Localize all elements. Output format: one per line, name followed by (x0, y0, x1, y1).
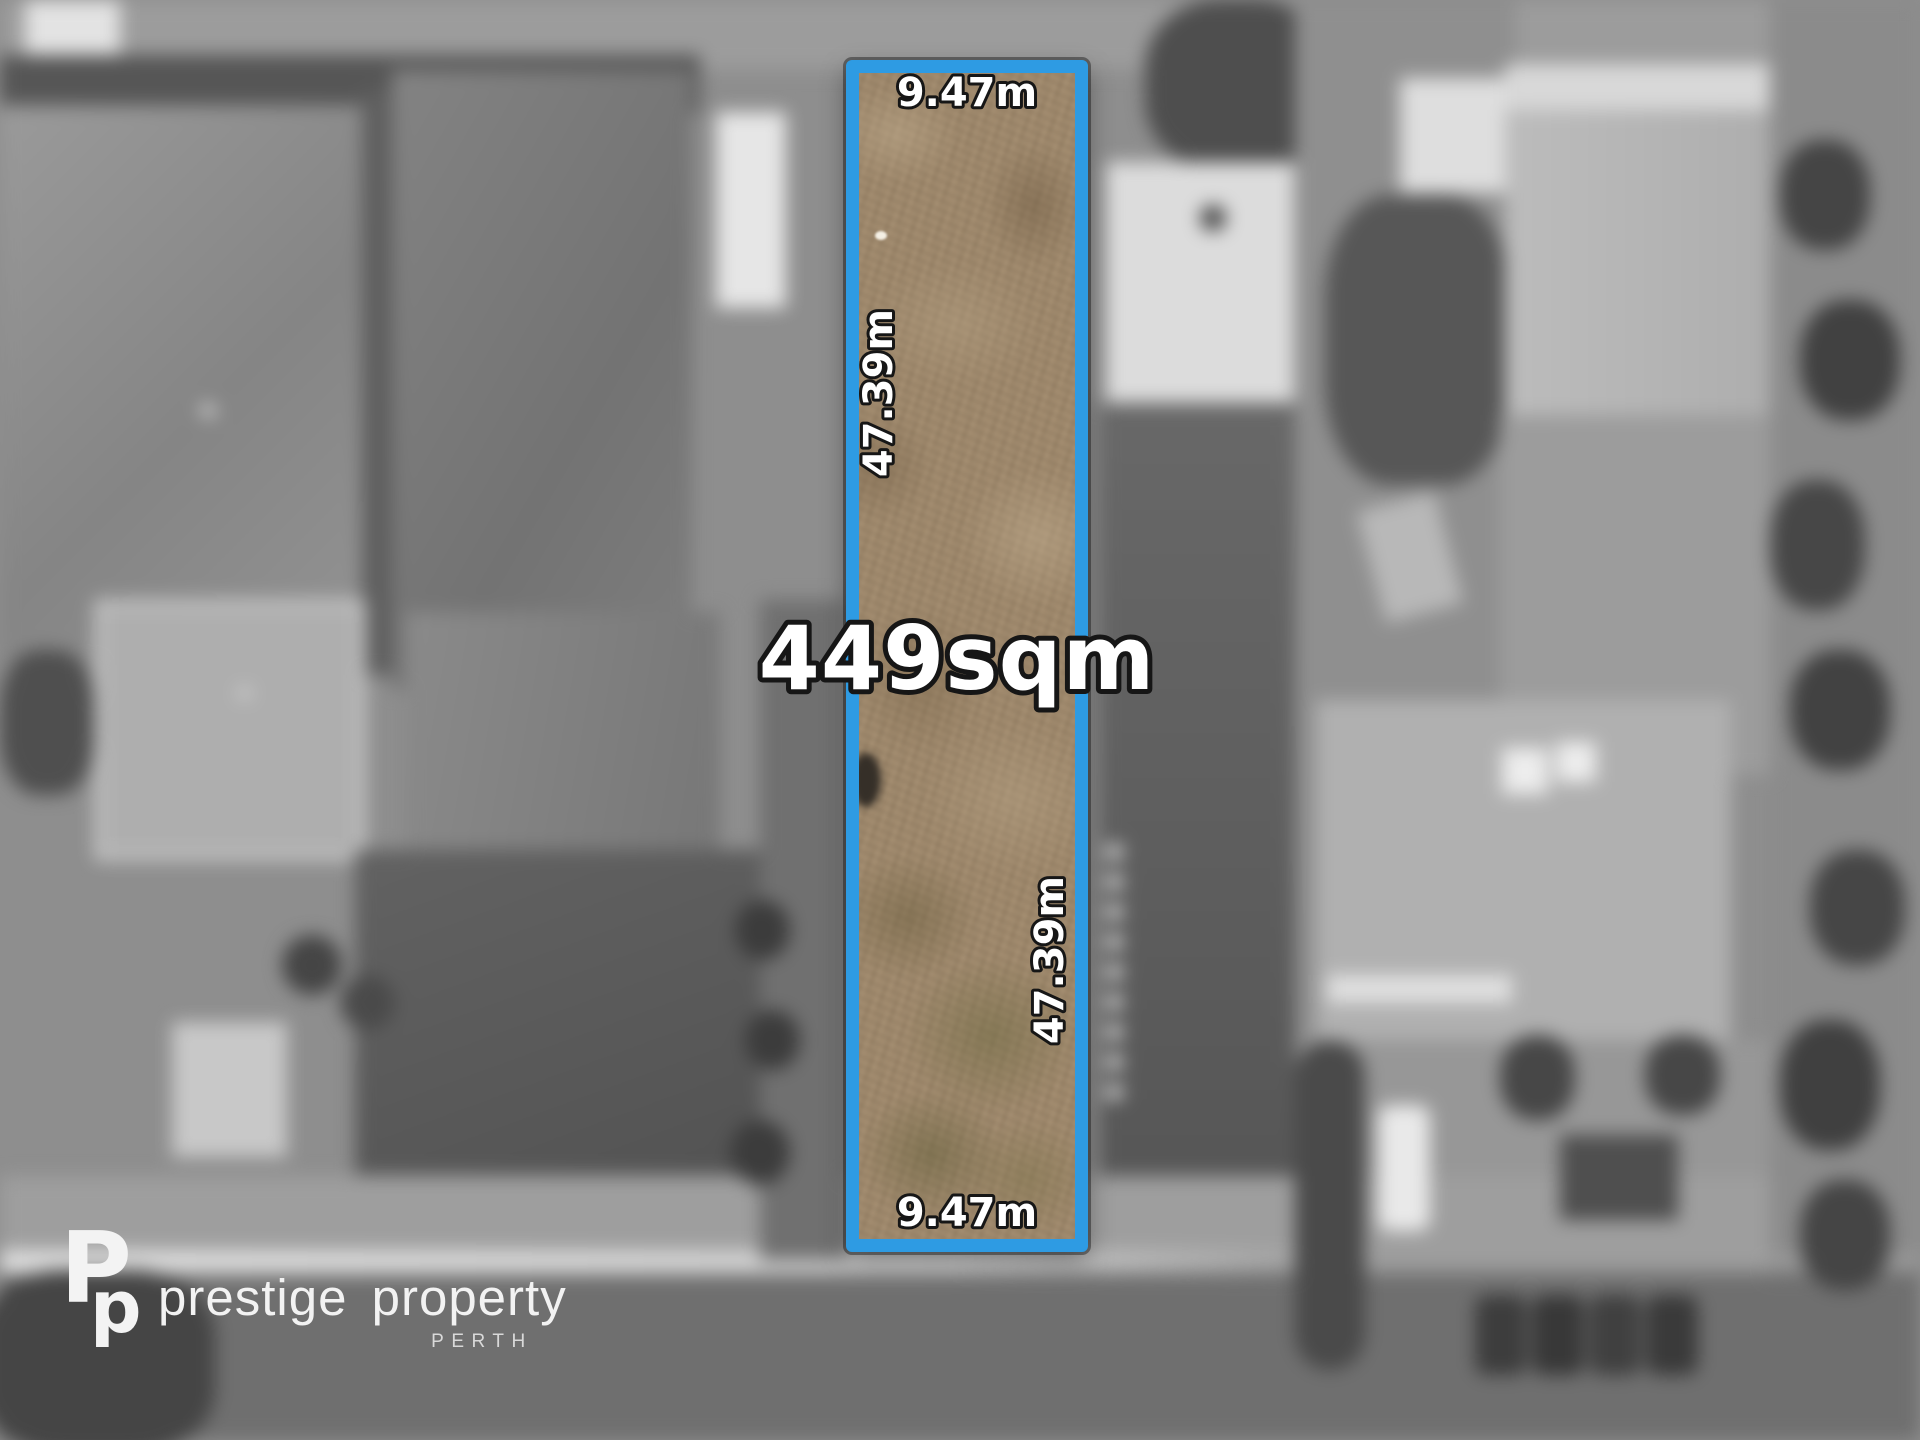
svg-text:47.39m: 47.39m (856, 309, 902, 477)
lot-white-pebble (875, 231, 887, 240)
aerial-skylight (1556, 742, 1596, 782)
left-depth-label: 47.39m (848, 273, 908, 513)
aerial-skylight (1502, 748, 1548, 794)
aerial-tree (745, 1010, 800, 1070)
aerial-house (1100, 405, 1295, 1210)
aerial-rooftop-vent (200, 405, 216, 416)
aerial-roof-gap (362, 90, 394, 675)
aerial-tree (1810, 850, 1905, 965)
aerial-tree (730, 1120, 790, 1185)
aerial-tree (1790, 650, 1890, 770)
agency-wordmark-block: prestige property PERTH (158, 1268, 567, 1353)
aerial-house (355, 850, 760, 1175)
aerial-roof-ridge (1327, 975, 1512, 1003)
aerial-tree (735, 900, 790, 960)
aerial-tree (1780, 140, 1870, 250)
aerial-tree (282, 935, 342, 995)
aerial-house (405, 612, 720, 857)
aerial-car (1475, 1295, 1527, 1375)
aerial-tree (1800, 300, 1900, 420)
monogram-letter-p: p (90, 1265, 142, 1349)
right-depth-label: 47.39m (1019, 840, 1079, 1080)
aerial-tree (1800, 1180, 1890, 1290)
aerial-garage (1106, 162, 1294, 402)
aerial-car (1532, 1295, 1584, 1375)
agency-location: PERTH (158, 1331, 567, 1353)
aerial-tree (1770, 480, 1865, 610)
aerial-tree (340, 975, 395, 1030)
aerial-house (95, 600, 365, 860)
aerial-bush (1645, 1035, 1720, 1115)
aerial-trees (0, 650, 95, 795)
aerial-property-image: 9.47m 47.39m 449sqm 47.39m 9.47m P p pre… (0, 0, 1920, 1440)
aerial-roof-vents (1106, 845, 1122, 1115)
aerial-trees (1325, 195, 1510, 485)
svg-text:47.39m: 47.39m (1027, 876, 1073, 1044)
aerial-trailer (1560, 1135, 1678, 1220)
agency-watermark: P p prestige property PERTH (60, 1228, 620, 1358)
aerial-car (1646, 1295, 1698, 1375)
aerial-shed (716, 112, 786, 308)
left-depth-label-wrapper: 47.39m (848, 273, 908, 513)
aerial-roof (0, 105, 370, 665)
right-depth-label-wrapper: 47.39m (1019, 840, 1079, 1080)
aerial-car (1589, 1295, 1641, 1375)
aerial-roof (25, 0, 120, 55)
lot-dark-patch (851, 753, 881, 807)
agency-monogram-icon: P p (60, 1228, 156, 1354)
aerial-car (1378, 1105, 1430, 1231)
agency-brand-name: prestige property (158, 1268, 567, 1327)
aerial-rooftop-vent (238, 688, 251, 698)
aerial-tree (1780, 1020, 1880, 1150)
aerial-roof (392, 70, 692, 690)
aerial-bushes (1295, 1040, 1365, 1370)
aerial-bush (1500, 1035, 1575, 1120)
aerial-shed (172, 1022, 287, 1157)
aerial-rooftop-vent (1200, 205, 1226, 231)
aerial-shed (1400, 78, 1505, 193)
